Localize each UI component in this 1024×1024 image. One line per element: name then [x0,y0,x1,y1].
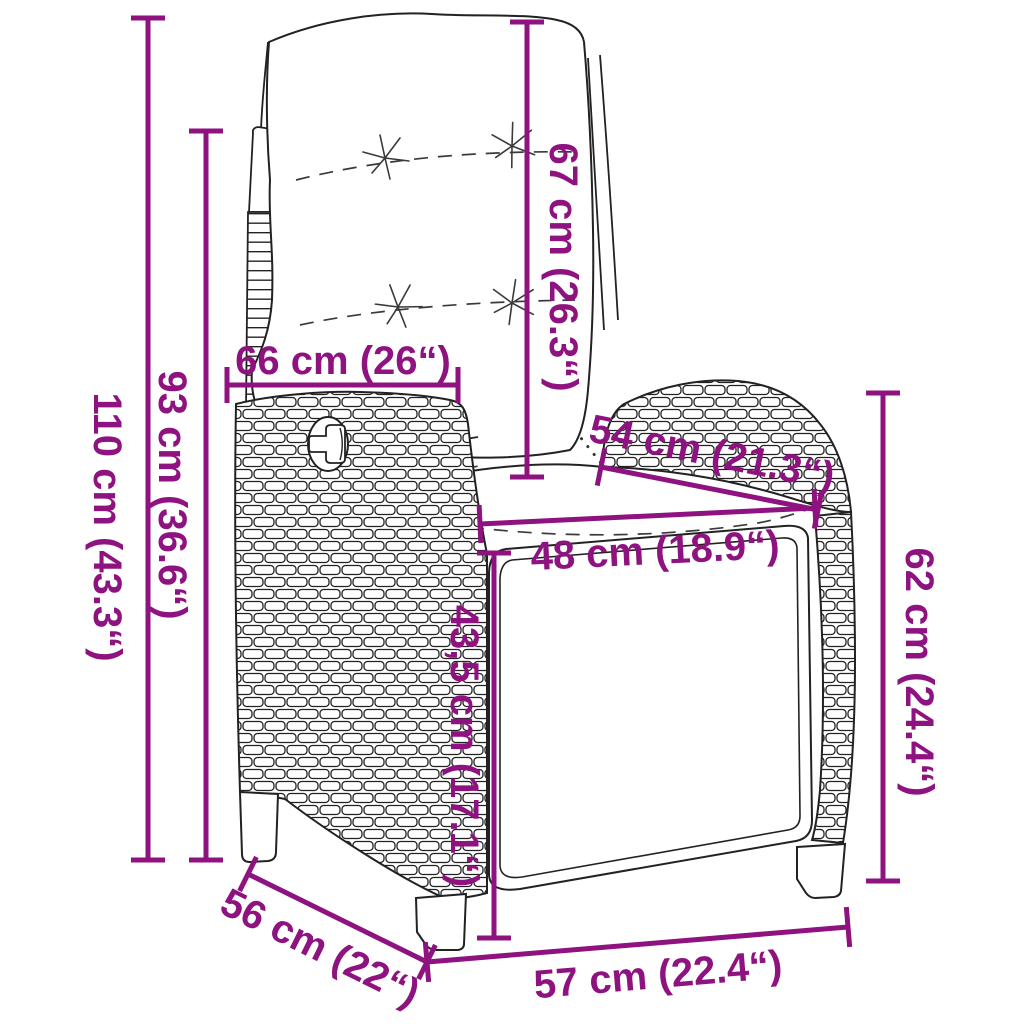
right-side-panel [812,512,855,843]
dim-seat-height-label: 43,5 cm (17.1“) [442,605,486,887]
product-dimension-drawing: 110 cm (43.3“) 93 cm (36.6“) 66 cm (26“)… [0,0,1024,1024]
dim-total-height-label: 110 cm (43.3“) [85,392,129,661]
back-right-foot [797,844,845,898]
dim-armrest-height-label: 62 cm (24.4“) [897,547,941,796]
dim-backrest-cushion-length-label: 67 cm (26.3“) [541,142,585,391]
dim-backrest-height-label: 93 cm (36.6“) [150,370,194,619]
front-foot [416,894,466,950]
front-left-leg [240,792,278,862]
dimension-armrest-height [866,393,900,881]
dim-backrest-width-label: 66 cm (26“) [235,339,451,383]
dimension-diagram: 110 cm (43.3“) 93 cm (36.6“) 66 cm (26“)… [0,0,1024,1024]
